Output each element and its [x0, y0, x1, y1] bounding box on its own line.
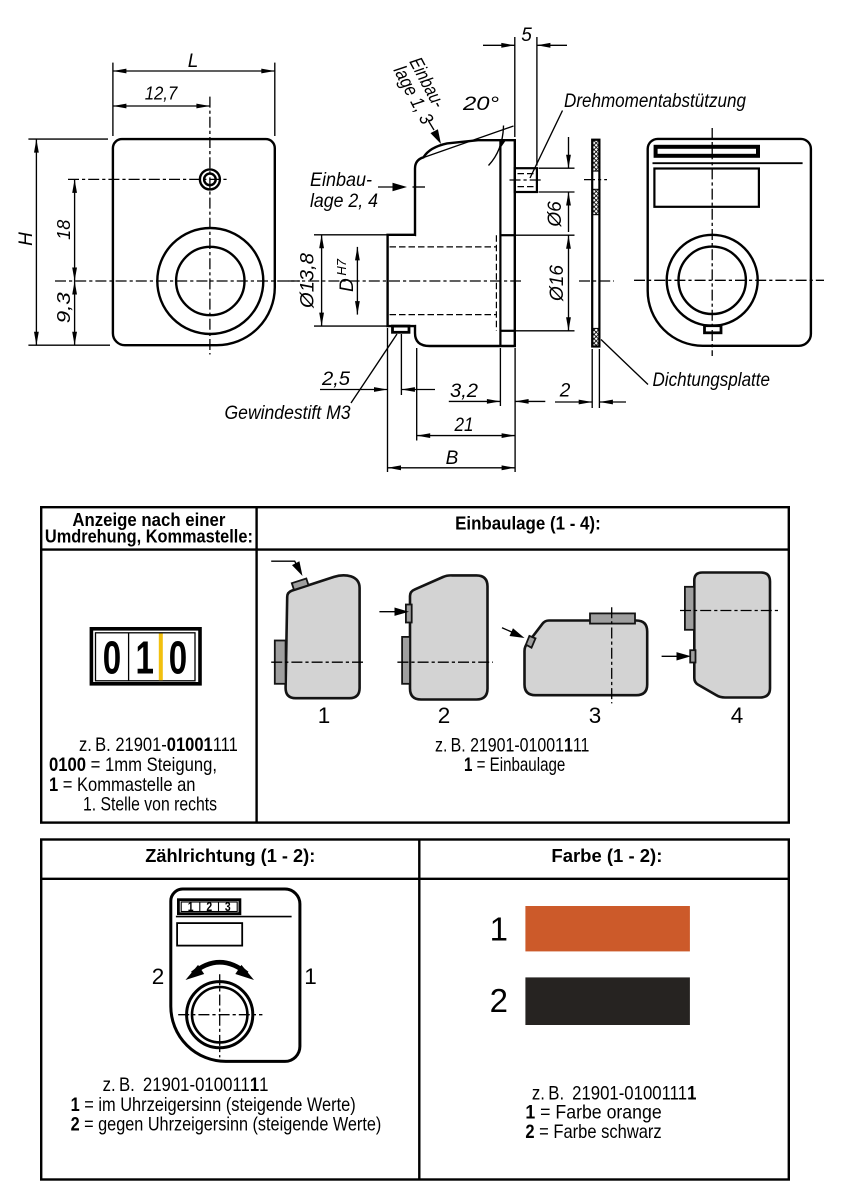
svg-text:Einbaulage (1 - 4):: Einbaulage (1 - 4):	[455, 513, 601, 534]
svg-text:L: L	[188, 51, 199, 72]
svg-text:2 = Farbe schwarz: 2 = Farbe schwarz	[525, 1121, 661, 1143]
svg-text:3: 3	[589, 703, 602, 728]
svg-text:Drehmomentabstützung: Drehmomentabstützung	[564, 91, 746, 112]
svg-text:Einbau-: Einbau-	[310, 170, 372, 191]
svg-text:Ø13,8: Ø13,8	[298, 253, 319, 310]
svg-text:Gewindestift M3: Gewindestift M3	[225, 403, 351, 424]
svg-text:Zählrichtung (1 - 2):: Zählrichtung (1 - 2):	[145, 845, 315, 866]
svg-text:Ø16: Ø16	[547, 265, 568, 302]
svg-text:5: 5	[521, 25, 532, 46]
svg-text:20°: 20°	[462, 94, 500, 115]
svg-text:2,5: 2,5	[321, 369, 351, 390]
svg-text:Farbe (1 - 2):: Farbe (1 - 2):	[551, 845, 662, 866]
svg-text:2: 2	[206, 900, 212, 914]
svg-text:1 = Kommastelle an: 1 = Kommastelle an	[49, 774, 196, 796]
svg-text:2: 2	[152, 964, 165, 989]
svg-text:1: 1	[188, 900, 194, 914]
svg-text:1. Stelle von rechts: 1. Stelle von rechts	[83, 794, 217, 816]
svg-text:0: 0	[103, 633, 121, 683]
svg-text:3,2: 3,2	[450, 381, 478, 402]
svg-text:Umdrehung, Kommastelle:: Umdrehung, Kommastelle:	[45, 526, 253, 547]
svg-text:lage 2, 4: lage 2, 4	[310, 191, 378, 212]
svg-text:1: 1	[318, 703, 331, 728]
svg-text:2: 2	[490, 982, 508, 1019]
svg-text:3: 3	[225, 900, 231, 914]
svg-text:0100 = 1mm Steigung,: 0100 = 1mm Steigung,	[49, 754, 217, 776]
svg-text:2: 2	[438, 703, 451, 728]
svg-text:z. B. 21901-01001111: z. B. 21901-01001111	[79, 734, 238, 756]
svg-text:1 = Einbaulage: 1 = Einbaulage	[464, 754, 565, 776]
svg-text:21: 21	[454, 415, 474, 436]
svg-text:1: 1	[490, 911, 508, 948]
svg-text:H: H	[16, 232, 37, 246]
svg-text:Dichtungsplatte: Dichtungsplatte	[653, 370, 771, 391]
svg-text:18: 18	[54, 220, 74, 240]
svg-text:Ø6: Ø6	[545, 201, 566, 228]
svg-text:2: 2	[559, 381, 571, 402]
svg-text:4: 4	[731, 703, 744, 728]
svg-text:9,3: 9,3	[54, 292, 74, 323]
svg-text:2 = gegen Uhrzeigersinn (steig: 2 = gegen Uhrzeigersinn (steigende Werte…	[71, 1114, 382, 1136]
svg-text:0: 0	[169, 633, 187, 683]
svg-text:1: 1	[304, 964, 317, 989]
svg-text:B: B	[446, 448, 459, 469]
svg-text:1: 1	[135, 633, 153, 683]
svg-text:12,7: 12,7	[145, 84, 179, 104]
svg-text:z. B. 21901-01001111: z. B. 21901-01001111	[103, 1074, 269, 1096]
